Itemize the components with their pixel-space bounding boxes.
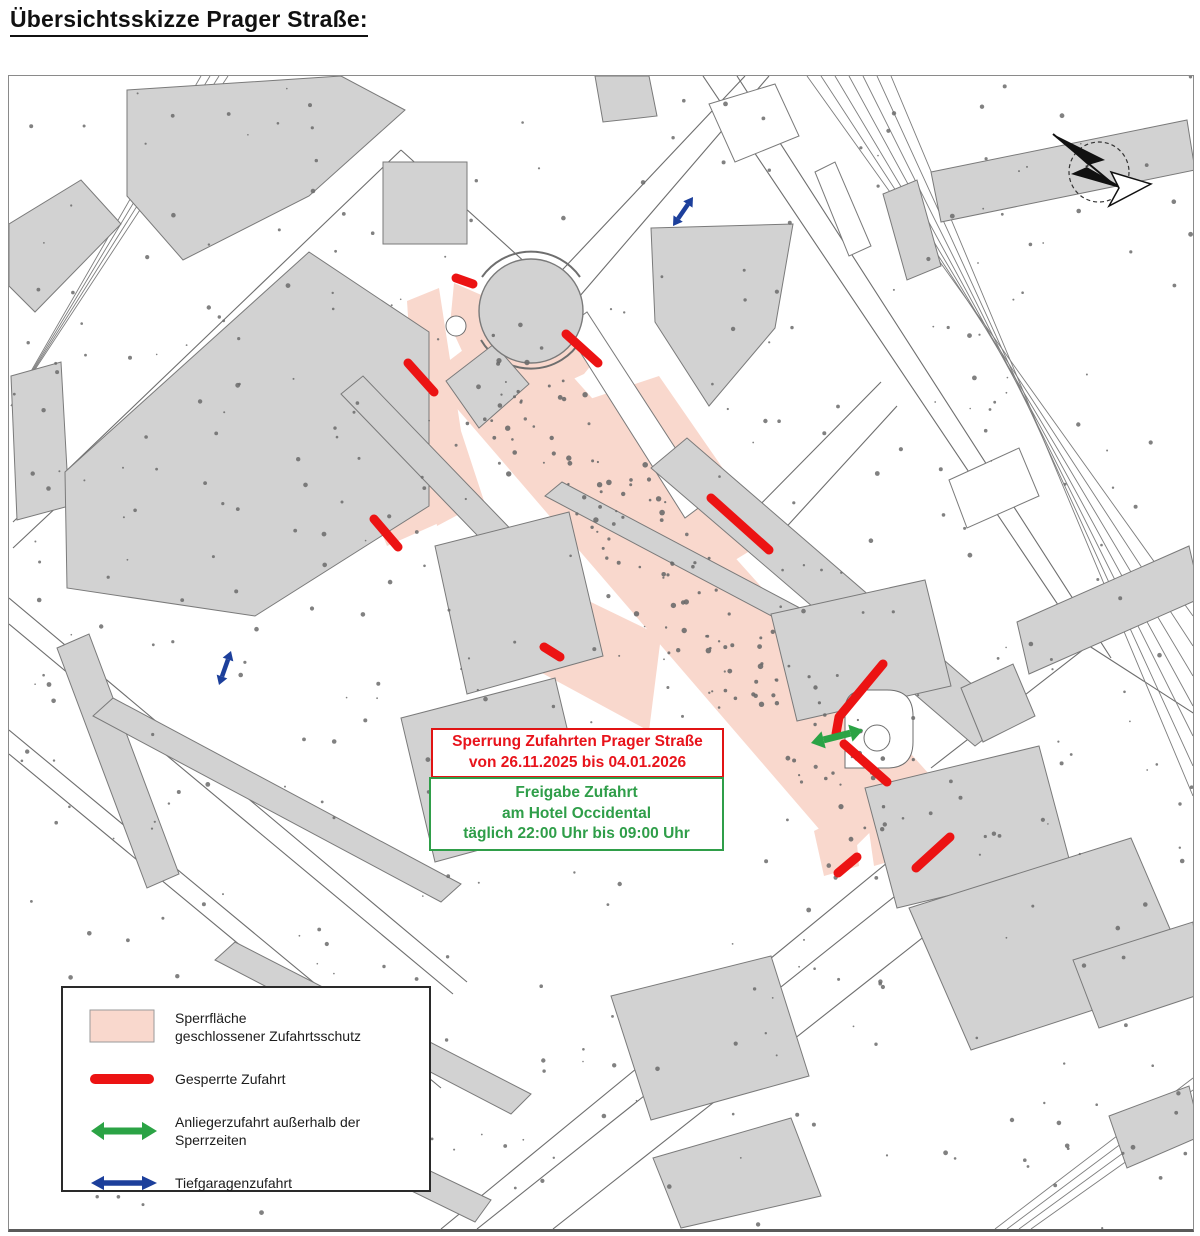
release-times-box: Freigabe Zufahrt am Hotel Occidental täg… [429, 777, 724, 851]
release-box-line1: Freigabe Zufahrt [431, 783, 722, 804]
garage-access-arrow-icon [89, 1162, 175, 1204]
closed-access-bar-icon [89, 1058, 175, 1100]
release-box-line3: täglich 22:00 Uhr bis 09:00 Uhr [431, 824, 722, 845]
legend-label: Anliegerzufahrt außerhalb derSperrzeiten [175, 1113, 360, 1150]
closure-area-swatch [89, 1006, 175, 1048]
legend-label: Gesperrte Zufahrt [175, 1070, 286, 1088]
map-legend: Sperrflächegeschlossener ZufahrtsschutzG… [61, 986, 431, 1192]
release-box-line2: am Hotel Occidental [431, 804, 722, 825]
resident-access-arrow-icon [89, 1110, 175, 1152]
legend-item-area: Sperrflächegeschlossener Zufahrtsschutz [89, 1006, 429, 1048]
legend-item-green-arrow: Anliegerzufahrt außerhalb derSperrzeiten [89, 1110, 429, 1152]
legend-item-bar: Gesperrte Zufahrt [89, 1058, 429, 1100]
closure-box-line1: Sperrung Zufahrten Prager Straße [433, 732, 722, 753]
legend-label: Sperrflächegeschlossener Zufahrtsschutz [175, 1009, 361, 1046]
legend-label: Tiefgaragenzufahrt [175, 1174, 292, 1192]
closure-box-line2: von 26.11.2025 bis 04.01.2026 [433, 753, 722, 774]
legend-item-blue-arrow: Tiefgaragenzufahrt [89, 1162, 429, 1204]
map-figure: Sperrung Zufahrten Prager Straße von 26.… [8, 75, 1194, 1232]
closure-dates-box: Sperrung Zufahrten Prager Straße von 26.… [431, 728, 724, 778]
page-title: Übersichtsskizze Prager Straße: [10, 6, 368, 37]
